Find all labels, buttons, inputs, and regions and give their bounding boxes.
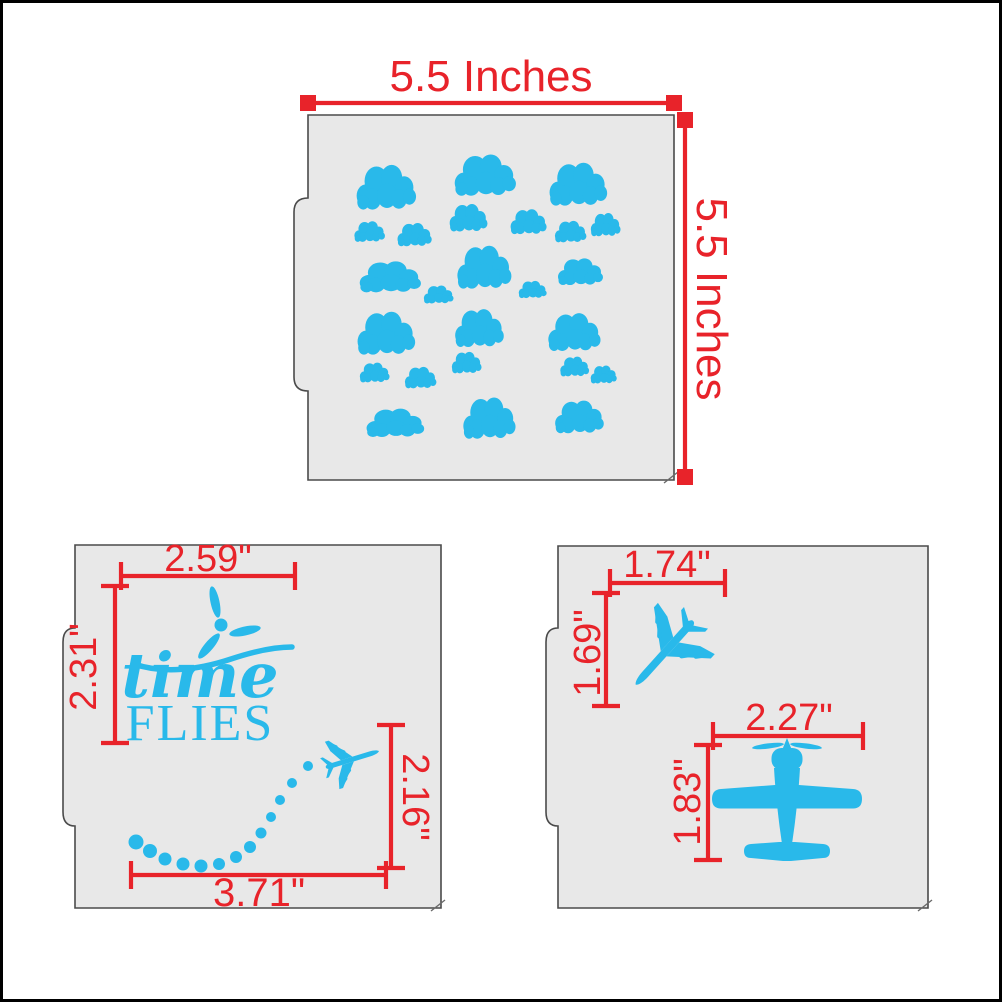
trail-dot [177, 858, 190, 871]
dimension-label: 2.27" [745, 697, 832, 739]
product-image-frame: time FLIES 5.5 Inches5.5 Inches2.59"2.31… [0, 0, 1002, 1002]
dimension-clouds-width: 5.5 Inches [300, 52, 682, 111]
flies-caps-word: FLIES [126, 695, 275, 752]
dimension-label: 1.83" [667, 758, 709, 845]
dimension-end-square [300, 95, 316, 111]
trail-dot [303, 761, 313, 771]
dimension-label: 2.31" [63, 623, 105, 710]
trail-dot [244, 841, 256, 853]
dimension-label: 1.74" [623, 544, 710, 586]
trail-dot [143, 844, 157, 858]
trail-dot [230, 851, 242, 863]
trail-dot [213, 858, 225, 870]
dimension-label: 2.16" [394, 753, 436, 840]
trail-dot [287, 778, 297, 788]
trail-dot [195, 860, 208, 873]
dimension-label: 1.69" [567, 609, 609, 696]
dimension-end-square [677, 112, 693, 128]
stencil-dimension-diagram: time FLIES 5.5 Inches5.5 Inches2.59"2.31… [3, 3, 1002, 1005]
planes-stencil-plate [546, 546, 928, 908]
dimension-end-square [677, 469, 693, 485]
dimension-label: 3.71" [213, 871, 305, 915]
dimension-label: 5.5 Inches [389, 52, 592, 101]
dimension-clouds-height: 5.5 Inches [677, 112, 736, 485]
dimension-label: 5.5 Inches [687, 197, 736, 400]
trail-dot [275, 795, 285, 805]
dimension-label: 2.59" [164, 538, 251, 580]
trail-dot [129, 835, 144, 850]
trail-dot [159, 853, 172, 866]
trail-dot [266, 812, 276, 822]
dimension-end-square [666, 95, 682, 111]
trail-dot [256, 828, 267, 839]
